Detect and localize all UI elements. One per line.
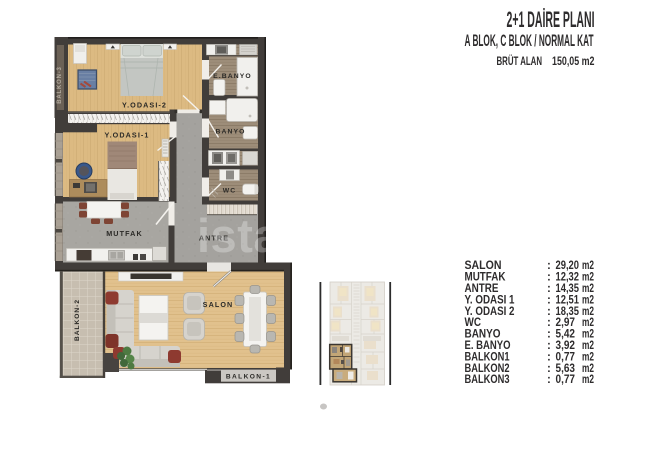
svg-text::: : bbox=[547, 283, 551, 295]
svg-text:m2: m2 bbox=[582, 306, 594, 318]
svg-text:SALON: SALON bbox=[465, 260, 502, 272]
svg-text:0,77: 0,77 bbox=[556, 351, 576, 363]
svg-text:m2: m2 bbox=[582, 260, 594, 272]
svg-text:18,35: 18,35 bbox=[556, 306, 580, 318]
svg-text::: : bbox=[547, 363, 551, 375]
svg-text::: : bbox=[547, 306, 551, 318]
svg-text:m2: m2 bbox=[582, 374, 594, 386]
svg-text:BALKON-3: BALKON-3 bbox=[57, 66, 63, 103]
svg-text:5,42: 5,42 bbox=[556, 329, 576, 341]
svg-text:3,92: 3,92 bbox=[556, 340, 576, 352]
svg-text::: : bbox=[547, 294, 551, 306]
svg-text::: : bbox=[547, 351, 551, 363]
svg-text:m2: m2 bbox=[582, 294, 594, 306]
svg-text::: : bbox=[547, 340, 551, 352]
svg-text:m2: m2 bbox=[582, 283, 594, 295]
svg-text:2,97: 2,97 bbox=[556, 317, 576, 329]
svg-text:m2: m2 bbox=[582, 340, 594, 352]
svg-text:0,77: 0,77 bbox=[556, 374, 576, 386]
svg-text:Y.ODASI-1: Y.ODASI-1 bbox=[104, 131, 149, 140]
svg-text:2+1 DAİRE PLANI: 2+1 DAİRE PLANI bbox=[507, 7, 595, 32]
svg-text:A BLOK, C BLOK / NORMAL KAT: A BLOK, C BLOK / NORMAL KAT bbox=[465, 32, 594, 50]
svg-text:MUTFAK: MUTFAK bbox=[106, 229, 143, 238]
svg-text:SALON: SALON bbox=[203, 300, 234, 309]
svg-text:BRÜT ALAN: BRÜT ALAN bbox=[497, 53, 543, 68]
svg-text:BALKON-1: BALKON-1 bbox=[226, 374, 271, 381]
svg-text:Y. ODASI 2: Y. ODASI 2 bbox=[465, 306, 515, 318]
svg-text::: : bbox=[547, 272, 551, 284]
svg-text:m2: m2 bbox=[582, 363, 594, 375]
svg-text::: : bbox=[547, 329, 551, 341]
svg-text:BANYO: BANYO bbox=[215, 128, 245, 135]
svg-text::: : bbox=[547, 317, 551, 329]
svg-text:ANTRE: ANTRE bbox=[465, 283, 499, 295]
svg-text:BALKON1: BALKON1 bbox=[465, 351, 510, 363]
svg-text:BALKON-2: BALKON-2 bbox=[74, 299, 81, 341]
svg-text::: : bbox=[547, 260, 551, 272]
svg-text:m2: m2 bbox=[582, 272, 594, 284]
svg-text:BALKON3: BALKON3 bbox=[465, 374, 510, 386]
svg-text:WC: WC bbox=[223, 187, 237, 194]
svg-text:m2: m2 bbox=[582, 329, 594, 341]
svg-text:150,05 m2: 150,05 m2 bbox=[552, 54, 595, 68]
svg-text:29,20: 29,20 bbox=[556, 260, 580, 272]
svg-text:WC: WC bbox=[465, 317, 482, 329]
svg-text:12,32: 12,32 bbox=[556, 272, 580, 284]
svg-text:Y.ODASI-2: Y.ODASI-2 bbox=[122, 101, 167, 110]
svg-text:E.BANYO: E.BANYO bbox=[213, 73, 252, 80]
svg-text:istanbul: istanbul bbox=[197, 209, 381, 262]
svg-text:E. BANYO: E. BANYO bbox=[465, 340, 511, 352]
svg-text:BALKON2: BALKON2 bbox=[465, 363, 510, 375]
svg-text:12,51: 12,51 bbox=[556, 294, 580, 306]
svg-text:m2: m2 bbox=[582, 317, 594, 329]
svg-text::: : bbox=[547, 374, 551, 386]
svg-text:BANYO: BANYO bbox=[465, 329, 501, 341]
svg-text:5,63: 5,63 bbox=[556, 363, 576, 375]
svg-text:m2: m2 bbox=[582, 351, 594, 363]
svg-text:14,35: 14,35 bbox=[556, 283, 580, 295]
svg-text:MUTFAK: MUTFAK bbox=[465, 272, 507, 284]
svg-text:Y. ODASI 1: Y. ODASI 1 bbox=[465, 294, 516, 306]
